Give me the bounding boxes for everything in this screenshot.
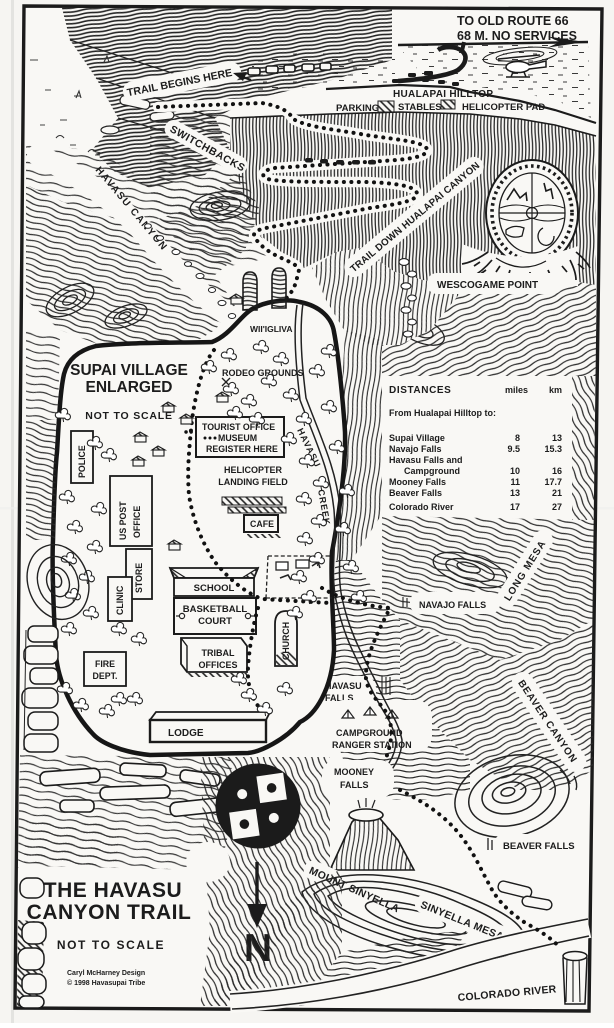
svg-text:© 1998 Havasupai Tribe: © 1998 Havasupai Tribe <box>67 979 145 987</box>
svg-text:HELICOPTER: HELICOPTER <box>224 465 283 475</box>
svg-text:FALLS: FALLS <box>340 780 369 790</box>
svg-text:POLICE: POLICE <box>77 445 87 478</box>
svg-text:NAVAJO FALLS: NAVAJO FALLS <box>419 600 486 610</box>
svg-text:From Hualapai Hilltop to:: From Hualapai Hilltop to: <box>389 408 496 418</box>
svg-text:17.7: 17.7 <box>544 477 562 487</box>
svg-text:LANDING FIELD: LANDING FIELD <box>218 477 288 487</box>
svg-text:9.5: 9.5 <box>507 444 520 454</box>
svg-text:FIRE: FIRE <box>95 659 115 669</box>
svg-text:Mooney Falls: Mooney Falls <box>389 477 446 487</box>
svg-text:Campground: Campground <box>404 466 460 476</box>
svg-text:TOURIST OFFICE: TOURIST OFFICE <box>202 422 275 432</box>
svg-text:OFFICES: OFFICES <box>198 660 237 670</box>
svg-text:km: km <box>549 385 562 395</box>
svg-text:CLINIC: CLINIC <box>115 585 125 615</box>
svg-text:Havasu Falls and: Havasu Falls and <box>389 455 463 465</box>
svg-text:TO OLD ROUTE 66: TO OLD ROUTE 66 <box>457 14 569 28</box>
svg-text:13: 13 <box>552 433 562 443</box>
svg-text:TRIBAL: TRIBAL <box>202 648 235 658</box>
svg-text:WESCOGAME POINT: WESCOGAME POINT <box>437 280 538 291</box>
svg-text:BASKETBALL: BASKETBALL <box>183 604 248 615</box>
svg-text:21: 21 <box>552 488 562 498</box>
svg-text:15.3: 15.3 <box>544 444 562 454</box>
svg-text:REGISTER HERE: REGISTER HERE <box>206 444 278 454</box>
svg-text:BEAVER FALLS: BEAVER FALLS <box>503 841 575 852</box>
svg-text:US POST: US POST <box>118 501 128 540</box>
svg-text:NOT TO SCALE: NOT TO SCALE <box>85 410 173 422</box>
svg-text:miles: miles <box>505 385 528 395</box>
svg-text:HELICOPTER PAD: HELICOPTER PAD <box>462 102 545 113</box>
svg-text:OFFICE: OFFICE <box>132 506 142 538</box>
svg-text:CHURCH: CHURCH <box>281 622 291 660</box>
svg-text:ENLARGED: ENLARGED <box>86 379 173 396</box>
svg-text:RODEO GROUNDS: RODEO GROUNDS <box>222 368 304 378</box>
svg-text:Supai Village: Supai Village <box>389 433 445 443</box>
svg-text:SUPAI VILLAGE: SUPAI VILLAGE <box>70 362 188 379</box>
svg-text:Navajo Falls: Navajo Falls <box>389 444 442 454</box>
svg-text:WII'IGLIVA: WII'IGLIVA <box>250 324 292 334</box>
svg-text:DEPT.: DEPT. <box>93 671 118 681</box>
svg-text:CAFE: CAFE <box>250 519 274 529</box>
svg-text:LODGE: LODGE <box>168 728 204 739</box>
svg-text:MOONEY: MOONEY <box>334 767 374 777</box>
svg-text:27: 27 <box>552 502 562 512</box>
svg-text:COURT: COURT <box>198 616 232 627</box>
svg-text:HUALAPAI HILLTOP: HUALAPAI HILLTOP <box>393 89 493 100</box>
svg-text:10: 10 <box>510 466 520 476</box>
svg-text:CANYON TRAIL: CANYON TRAIL <box>27 901 192 924</box>
svg-text:16: 16 <box>552 466 562 476</box>
svg-text:STORE: STORE <box>134 563 144 593</box>
svg-text:NOT TO SCALE: NOT TO SCALE <box>57 938 165 952</box>
svg-text:Beaver Falls: Beaver Falls <box>389 488 442 498</box>
svg-text:THE HAVASU: THE HAVASU <box>44 879 182 902</box>
svg-text:Colorado River: Colorado River <box>389 502 454 512</box>
svg-text:RANGER STATION: RANGER STATION <box>332 740 412 750</box>
svg-text:8: 8 <box>515 433 520 443</box>
svg-text:MUSEUM: MUSEUM <box>218 433 257 443</box>
svg-text:11: 11 <box>510 477 520 487</box>
svg-text:17: 17 <box>510 502 520 512</box>
svg-text:SCHOOL: SCHOOL <box>194 583 235 594</box>
svg-text:Caryl McHarney Design: Caryl McHarney Design <box>67 970 145 977</box>
svg-text:13: 13 <box>510 488 520 498</box>
svg-text:DISTANCES: DISTANCES <box>389 385 451 396</box>
